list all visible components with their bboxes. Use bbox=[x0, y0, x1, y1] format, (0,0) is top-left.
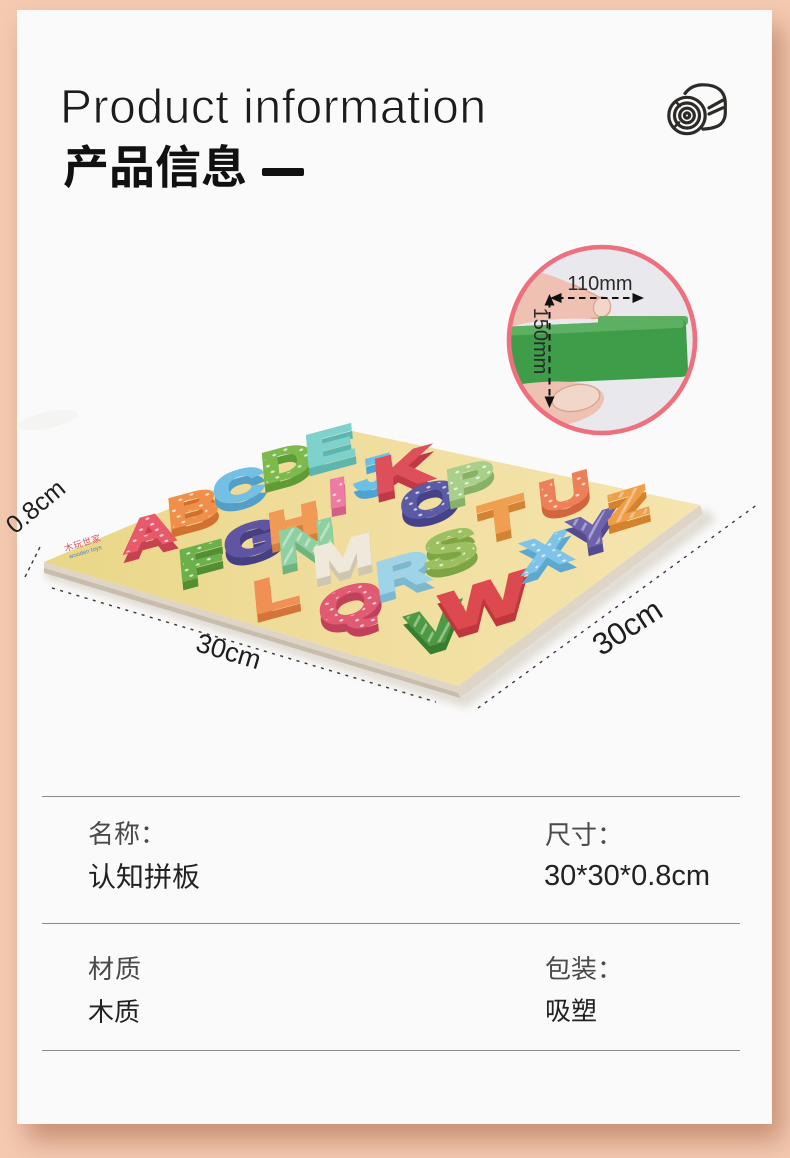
svg-text:0.8cm: 0.8cm bbox=[1, 474, 71, 539]
svg-text:110mm: 110mm bbox=[567, 273, 632, 295]
svg-text:150mm: 150mm bbox=[529, 308, 551, 375]
